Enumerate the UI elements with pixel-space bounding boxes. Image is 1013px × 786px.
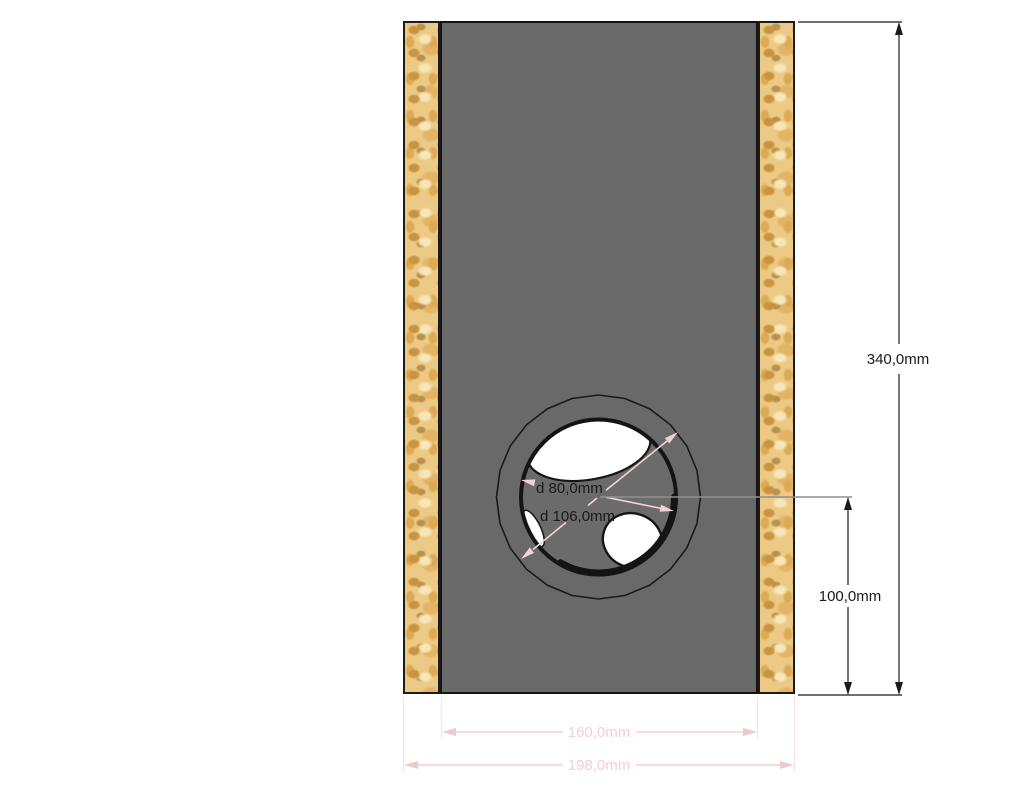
- arrowhead-right-icon: [780, 761, 794, 769]
- arrowhead-down-icon: [895, 682, 903, 695]
- arrowhead-left-icon: [404, 761, 418, 769]
- hole-diameter-label[interactable]: d 80,0mm: [536, 480, 603, 497]
- drawing-overlay: d 80,0mm d 106,0mm 340,0mm: [0, 0, 1013, 786]
- drawing-canvas: d 80,0mm d 106,0mm 340,0mm: [0, 0, 1013, 786]
- hole-center-label[interactable]: 100,0mm: [819, 588, 882, 605]
- arrowhead-down-icon: [844, 682, 852, 695]
- total-height-label[interactable]: 340,0mm: [867, 351, 930, 368]
- inner-width-label[interactable]: 160,0mm: [568, 724, 631, 741]
- arrowhead-up-icon: [895, 22, 903, 35]
- outer-width-label[interactable]: 198,0mm: [568, 757, 631, 774]
- ring-diameter-label[interactable]: d 106,0mm: [540, 508, 615, 525]
- dimension-inner-width[interactable]: 160,0mm: [442, 697, 758, 741]
- arrowhead-right-icon: [743, 728, 757, 736]
- arrowhead-left-icon: [442, 728, 456, 736]
- arrowhead-up-icon: [844, 497, 852, 510]
